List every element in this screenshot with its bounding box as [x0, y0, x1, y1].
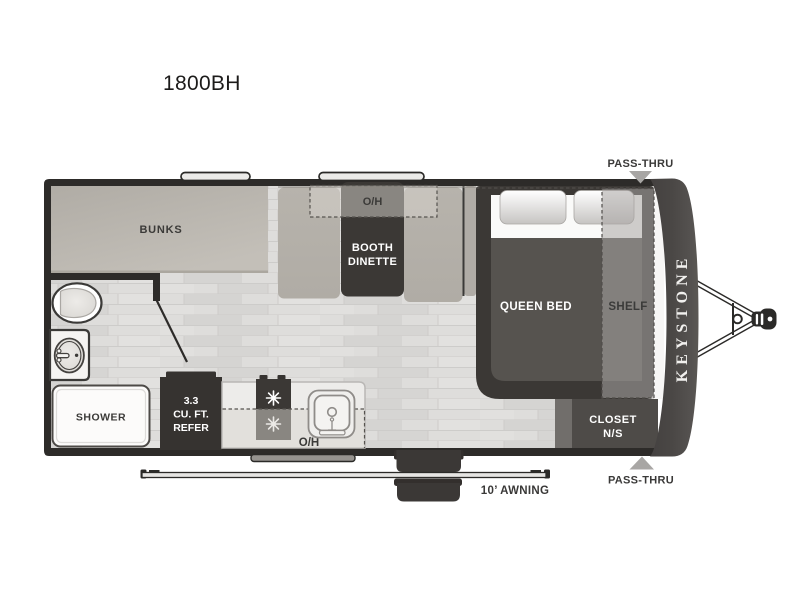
svg-text:DINETTE: DINETTE: [348, 256, 397, 268]
svg-text:QUEEN BED: QUEEN BED: [500, 301, 572, 313]
svg-text:CLOSET: CLOSET: [589, 414, 637, 426]
svg-text:BOOTH: BOOTH: [352, 242, 393, 254]
svg-text:3.3: 3.3: [184, 395, 199, 407]
svg-text:KEYSTONE: KEYSTONE: [674, 254, 691, 383]
svg-text:BUNKS: BUNKS: [139, 224, 182, 236]
svg-text:REFER: REFER: [173, 422, 209, 434]
svg-text:1800BH: 1800BH: [163, 72, 241, 95]
svg-text:PASS-THRU: PASS-THRU: [608, 475, 674, 487]
svg-text:10’ AWNING: 10’ AWNING: [481, 485, 549, 497]
svg-text:PASS-THRU: PASS-THRU: [607, 158, 673, 170]
svg-text:SHOWER: SHOWER: [76, 412, 126, 424]
svg-text:O/H: O/H: [363, 196, 383, 208]
svg-text:N/S: N/S: [603, 428, 623, 440]
svg-text:CU. FT.: CU. FT.: [173, 409, 209, 421]
svg-text:SHELF: SHELF: [608, 301, 647, 313]
svg-text:O/H: O/H: [299, 437, 319, 449]
